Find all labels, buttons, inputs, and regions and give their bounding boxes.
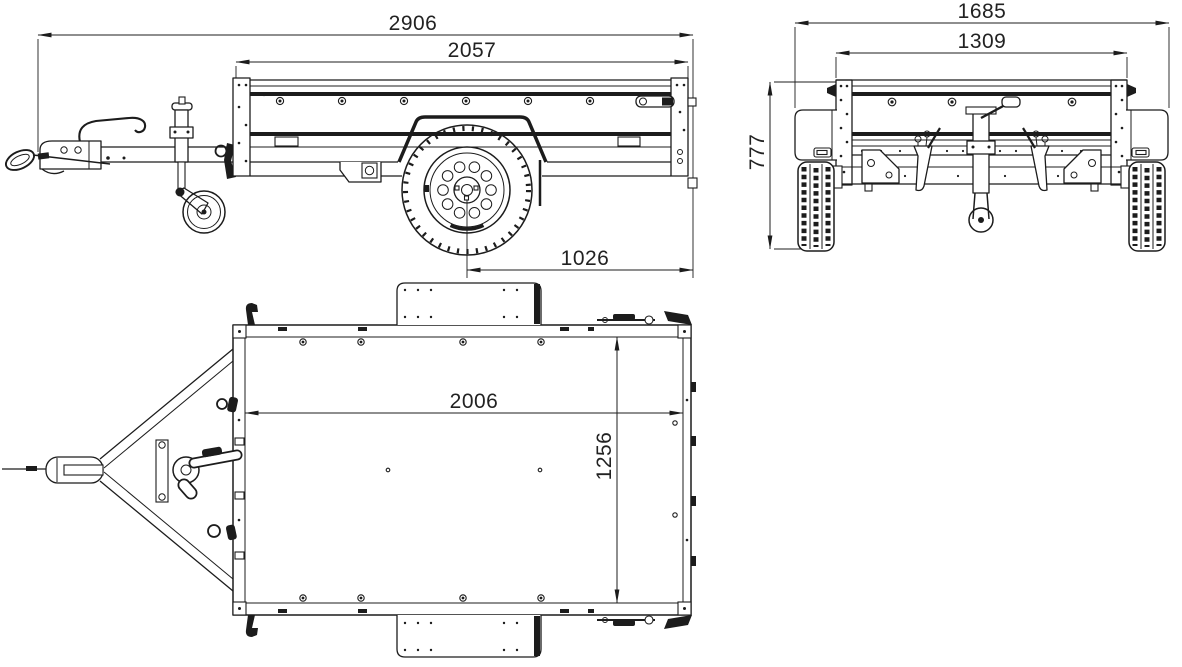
side-box-body [233,78,697,188]
dim-label-inner-length: 2006 [450,390,499,413]
rear-panel-screws [888,98,1076,106]
front-corner-post [233,78,250,176]
top-drawbar [2,349,237,591]
side-latch-front [275,137,298,146]
dim-label-overall-height: 777 [746,134,769,171]
floor-screws [238,339,689,601]
jockey-wheel-plan [173,446,237,493]
left-hinge-knuckle [827,84,836,97]
side-view: 2906 2057 1026 [3,12,697,278]
latch-bottom-left [246,615,258,637]
jockey-wheel-rear [966,97,1020,232]
dim-label-bed-length: 2057 [448,39,497,62]
dim-label-overall-length: 2906 [389,12,438,35]
latch-top-left [246,303,258,325]
top-bed [233,325,696,615]
latch-bottom-right [597,615,692,629]
side-dimension-bed-length: 2057 [236,39,688,79]
top-mudguards [397,283,541,657]
top-view: 2006 1256 [2,283,696,657]
jockey-wheel-side [170,97,225,233]
side-dimension-overall-length: 2906 [38,12,693,278]
bed-outer-wall [233,325,691,615]
coupling-hitch [40,118,145,174]
trailer-drawing: 2906 2057 1026 [0,0,1182,667]
coupling-handle [79,118,145,142]
dim-label-inner-width: 1256 [593,432,616,481]
side-dimension-axle-to-rear: 1026 [467,196,693,278]
rear-view: 1685 1309 777 [746,0,1169,251]
top-dimension-inner-width: 1256 [593,337,617,603]
cross-member [156,440,168,502]
dim-label-body-width: 1309 [958,30,1007,53]
jockey-clamp [170,127,193,138]
edge-tabs [278,327,696,613]
drawing-canvas: 2906 2057 1026 [0,0,1182,667]
jockey-crank-handle [1002,97,1020,107]
rear-dimension-body-width: 1309 [836,30,1127,78]
top-corner-latches [208,303,692,637]
dim-label-axle-to-rear: 1026 [561,247,610,270]
jockey-mount-clamp [967,141,995,154]
coupling-body [40,141,101,169]
side-latch-rear [618,137,640,146]
front-panel-clamps [208,396,239,540]
underframe-bracket [340,162,381,182]
right-hinge-knuckle [1127,84,1136,97]
rear-corner-post [671,78,688,176]
latch-top-right [597,311,692,325]
dim-label-overall-width: 1685 [958,0,1007,23]
rear-light-bracket [688,178,697,188]
